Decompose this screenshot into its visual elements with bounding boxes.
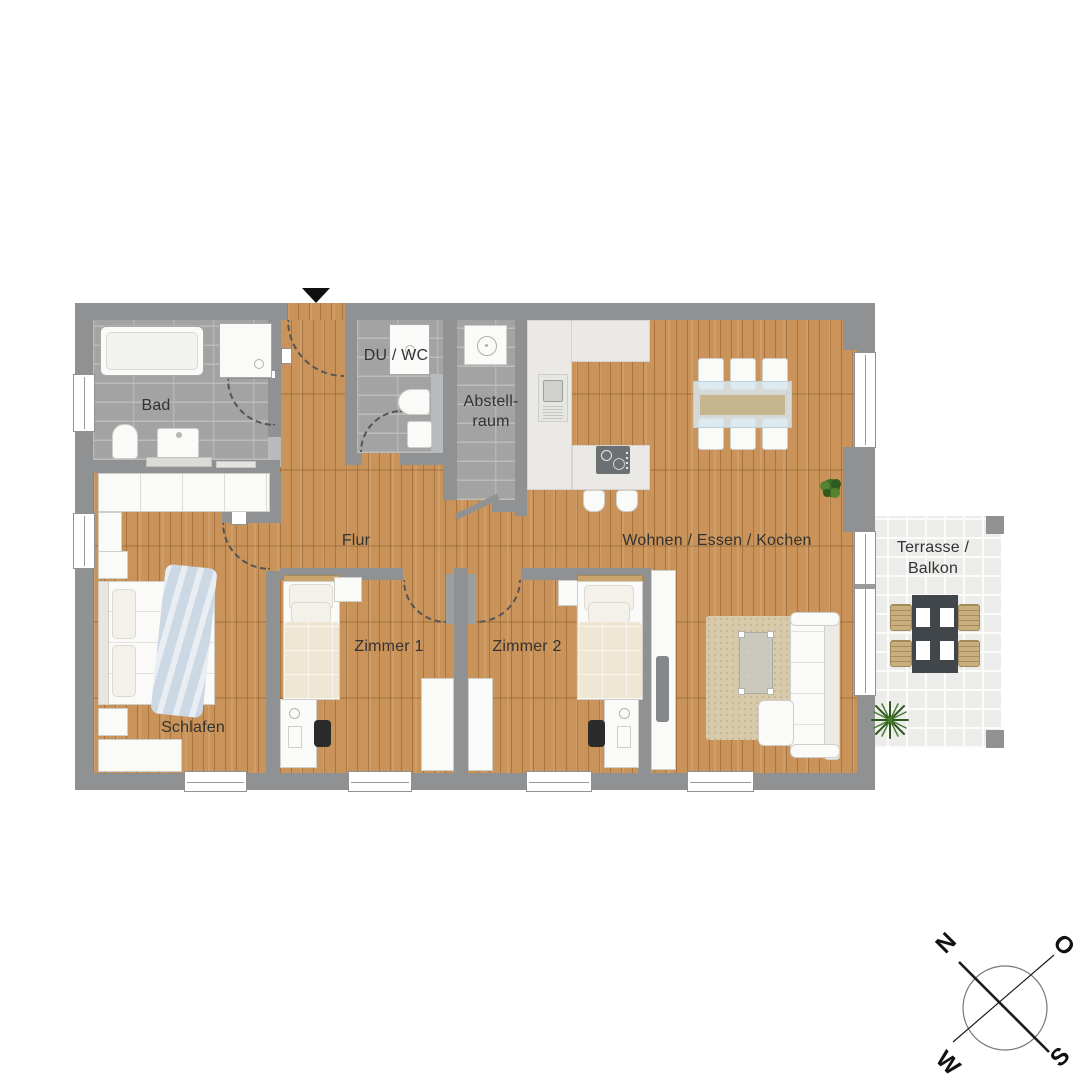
wall-bedroom-room1 <box>266 571 280 773</box>
room-label-terrasse: Terrasse / Balkon <box>897 537 969 579</box>
terrace-door <box>854 531 876 696</box>
terrace-table <box>912 595 958 673</box>
plant <box>816 474 846 504</box>
room-label-schlafen: Schlafen <box>161 718 225 738</box>
plant <box>868 698 912 742</box>
coffee-table <box>739 632 773 694</box>
kitchen-sink <box>538 374 568 422</box>
wall-pier-top-right <box>843 320 857 350</box>
sink-basin <box>543 380 563 402</box>
wall-top-left <box>75 303 287 320</box>
door-frame-mark <box>281 348 292 364</box>
terrace-post <box>986 730 1004 748</box>
nightstand <box>334 577 362 602</box>
pillow <box>112 589 136 639</box>
wall-top-right <box>345 303 875 320</box>
window <box>348 771 412 792</box>
nightstand <box>98 551 128 579</box>
wall-room1-room2 <box>454 568 468 773</box>
compass-south: S <box>1045 1042 1075 1072</box>
wardrobe <box>468 678 493 771</box>
desk <box>604 699 639 768</box>
sofa-backrest <box>824 614 840 760</box>
room2-door-panel <box>468 574 476 624</box>
bathtub <box>100 326 204 376</box>
wall-duwc-storage <box>443 320 457 500</box>
duvet <box>578 622 642 699</box>
compass-west: W <box>930 1046 965 1080</box>
window <box>184 771 247 792</box>
faucet <box>176 432 182 438</box>
terrace-door-mullion <box>855 584 875 589</box>
wall-duwc-bottom-a <box>345 453 362 465</box>
floor-plan: Bad DU / WC Abstell- raum Flur Wohnen / … <box>0 0 1080 1080</box>
duvet <box>284 622 339 699</box>
toilet <box>398 389 430 415</box>
table-runner <box>700 395 785 415</box>
wall-duwc-bottom-b <box>400 453 443 465</box>
drainboard <box>543 406 563 419</box>
sofa-seat <box>790 618 826 756</box>
sofa-armrest <box>790 612 840 626</box>
terrace-chair <box>958 604 980 631</box>
washbasin <box>407 421 432 448</box>
vanity-shelf <box>146 457 212 467</box>
cooktop <box>596 446 630 474</box>
window <box>73 513 95 569</box>
wall-storage-bottom <box>492 500 515 512</box>
room-label-du-wc: DU / WC <box>364 346 429 366</box>
shower <box>219 323 272 378</box>
terrace-chair <box>890 640 912 667</box>
compass-north: N <box>931 928 962 959</box>
bathroom-sink <box>157 428 199 459</box>
dresser <box>98 739 182 772</box>
room-label-bad: Bad <box>141 396 170 416</box>
window <box>73 374 95 432</box>
sofa-armrest <box>790 744 840 758</box>
wardrobe <box>98 473 270 512</box>
room-label-flur: Flur <box>342 531 370 551</box>
desk-chair <box>314 720 331 747</box>
room-label-abstellraum: Abstell- raum <box>464 392 519 432</box>
bar-stool <box>583 490 605 512</box>
window <box>854 352 876 448</box>
terrace-post <box>986 516 1004 534</box>
desk-chair <box>588 720 605 747</box>
window <box>526 771 592 792</box>
dining-table <box>693 381 792 428</box>
toilet <box>112 424 138 459</box>
bar-stool <box>616 490 638 512</box>
nightstand <box>98 708 128 736</box>
washing-machine-drum <box>477 336 497 356</box>
pillow <box>588 602 630 624</box>
pillow <box>112 645 136 697</box>
desk <box>280 699 317 768</box>
compass-rose: N O S W <box>915 918 1080 1080</box>
duwc-door-panel <box>431 374 443 462</box>
room-label-zimmer1: Zimmer 1 <box>354 637 423 657</box>
bath-shelf <box>216 461 256 468</box>
window <box>687 771 754 792</box>
tv <box>656 656 669 722</box>
entry-floor-strip <box>287 303 345 320</box>
room-label-wohnen: Wohnen / Essen / Kochen <box>622 531 811 551</box>
wardrobe <box>421 678 454 771</box>
room1-door-panel <box>446 574 454 624</box>
bathtub-basin <box>106 332 198 370</box>
sofa-chaise <box>758 700 794 746</box>
terrace-chair <box>890 604 912 631</box>
room-label-zimmer2: Zimmer 2 <box>492 637 561 657</box>
pillow <box>291 602 331 624</box>
shower-drain <box>254 359 264 369</box>
washing-machine <box>464 325 507 365</box>
entrance-arrow <box>302 288 330 303</box>
terrace-chair <box>958 640 980 667</box>
wall-duwc-left <box>345 320 357 465</box>
